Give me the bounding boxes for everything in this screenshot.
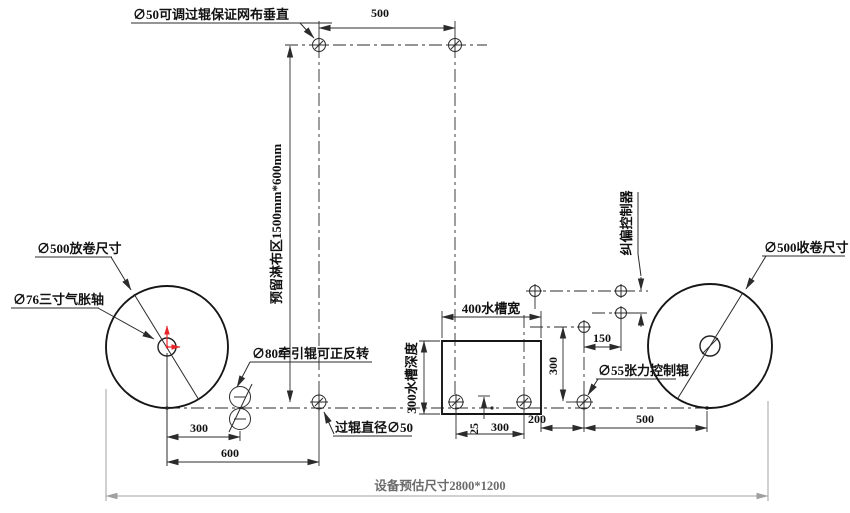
dim-top-span-text: 500 (371, 6, 389, 20)
guide-roller-left (577, 320, 591, 334)
rewind-size-text: ∅500收卷尺寸 (764, 240, 849, 255)
guide-roller-far-left (528, 284, 542, 298)
dim-tank-to-tension: 200 (528, 412, 584, 432)
tank-depth-text: 300水槽深度 (404, 341, 419, 414)
unwind-roll (106, 286, 228, 466)
label-adjustable-roller: ∅50可调过辊保证网布垂直 (131, 7, 332, 38)
tension-drop-text: 300 (546, 357, 560, 375)
air-shaft-text: ∅76三寸气胀轴 (13, 292, 104, 307)
roller-offset-text: 25 (467, 423, 481, 435)
top-roller-left (311, 37, 327, 53)
label-deviation-controller: 纠偏控制器 (619, 190, 641, 276)
dim-unwind-traction-text: 300 (190, 421, 208, 435)
dim-tank-depth: 300水槽深度 (404, 341, 440, 414)
label-rewind-size: ∅500收卷尺寸 (746, 240, 849, 289)
machine-layout-drawing: ∅50可调过辊保证网布垂直 500 预留淋布区1500mm*600mm ∅500… (0, 0, 850, 513)
tension-roller-text: ∅55张力控制辊 (598, 363, 689, 378)
dim-tension-to-rewind: 500 (584, 406, 709, 432)
pass-roller-text: 过辊直径∅50 (335, 420, 413, 435)
tension-to-rewind-text: 500 (636, 412, 654, 426)
dim-top-span: 500 (319, 6, 455, 37)
reserved-zone-text: 预留淋布区1500mm*600mm (269, 144, 284, 304)
tank-width-text: 400水槽宽 (462, 301, 521, 316)
dim-tank-width: 400水槽宽 (442, 301, 541, 338)
dim-unwind-pass-text: 600 (221, 446, 239, 460)
dim-roller-offset: 25 (467, 396, 494, 435)
origin-marker (166, 326, 180, 348)
controller-offset-text: 150 (593, 331, 611, 345)
traction-roller-text: ∅80牵引辊可正反转 (252, 346, 369, 361)
label-pass-roller: 过辊直径∅50 (324, 412, 413, 436)
deviation-controller-text: 纠偏控制器 (619, 190, 634, 256)
tank-roller-span-text: 300 (491, 420, 509, 434)
unwind-size-text: ∅500放卷尺寸 (37, 241, 122, 256)
guide-roller-mid (614, 306, 628, 320)
dim-tension-drop: 300 (546, 327, 578, 402)
label-air-shaft: ∅76三寸气胀轴 (11, 292, 154, 339)
dim-overall: 设备预估尺寸2800*1200 (106, 389, 768, 501)
dim-controller-gap (628, 277, 647, 327)
label-tension-roller: ∅55张力控制辊 (588, 363, 689, 395)
water-tank (442, 341, 541, 414)
tank-to-tension-text: 200 (528, 412, 546, 426)
overall-size-text: 设备预估尺寸2800*1200 (374, 478, 505, 493)
guide-roller-top (614, 284, 628, 298)
adjustable-roller-text: ∅50可调过辊保证网布垂直 (133, 7, 289, 22)
label-unwind-size: ∅500放卷尺寸 (35, 241, 131, 290)
dim-controller-offset: 150 (584, 320, 621, 351)
label-traction-roller: ∅80牵引辊可正反转 (237, 346, 372, 387)
cad-drawing-canvas: ∅50可调过辊保证网布垂直 500 预留淋布区1500mm*600mm ∅500… (0, 0, 850, 513)
top-roller-right (447, 37, 463, 53)
rewind-roll (648, 284, 772, 408)
